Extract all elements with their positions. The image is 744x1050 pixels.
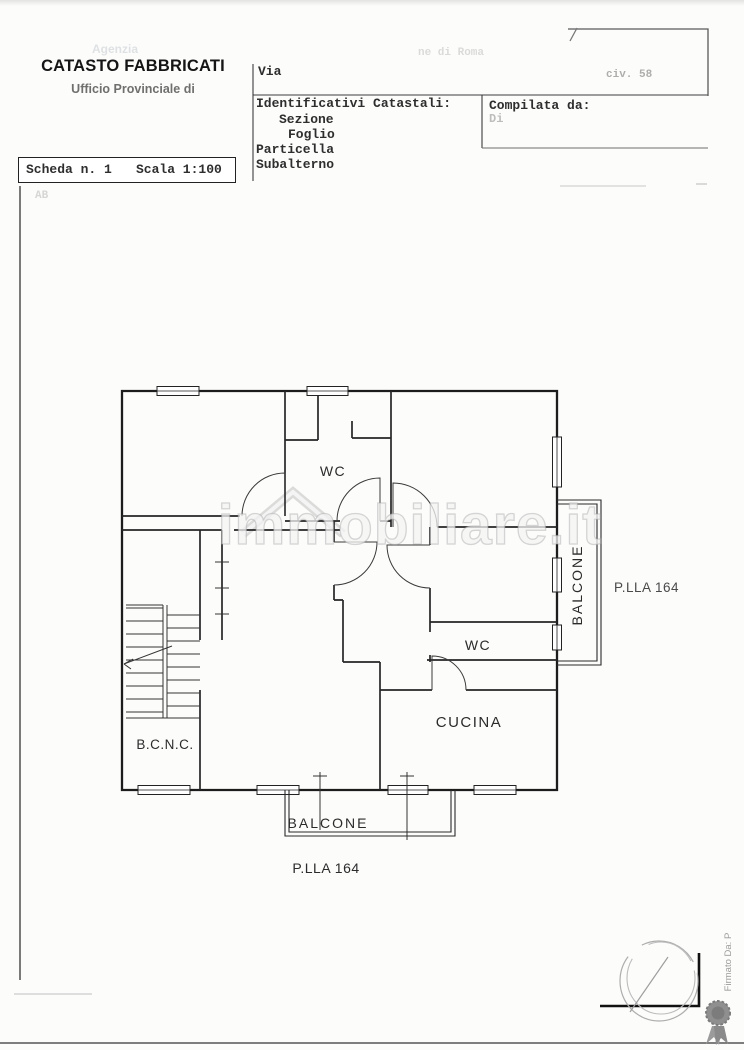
plan-label-parcel-bottom: P.LLA 164	[292, 860, 359, 876]
faded-comune-text: ne di Roma	[418, 47, 484, 59]
windows	[138, 387, 562, 795]
stairs	[124, 605, 200, 718]
plan-label-balcony-bottom: BALCONE	[288, 815, 369, 831]
corner-mark-top-right	[568, 28, 708, 96]
cadastral-ids-label: Identificativi Catastali:	[256, 96, 451, 111]
stamp-circle	[620, 941, 698, 1021]
sheet-number-box: Scheda n. 1 Scala 1:100	[18, 157, 236, 183]
plan-label-kitchen: CUCINA	[436, 714, 503, 731]
office-subtitle: Ufficio Provinciale di	[38, 82, 228, 96]
foglio-field-label: Foglio	[288, 127, 335, 142]
sezione-field-label: Sezione	[279, 112, 334, 127]
watermark-house-icon	[243, 492, 343, 534]
faded-civic-number: civ. 58	[606, 69, 652, 81]
faded-agency-text: Agenzia	[92, 42, 138, 56]
particella-field-label: Particella	[256, 142, 334, 157]
rosette-seal-icon	[706, 1001, 730, 1045]
faded-margin-note: AB	[35, 190, 48, 202]
page-border-lines	[0, 186, 744, 1043]
plan-label-wc-mid: WC	[465, 637, 491, 653]
street-field-label: Via	[258, 64, 281, 79]
document-title: CATASTO FABBRICATI	[38, 57, 228, 76]
sheet-number-label: Scheda n. 1	[26, 162, 112, 177]
signature-text: Firmato Da: P	[723, 933, 734, 992]
compiled-by-label: Compilata da:	[489, 98, 590, 113]
corner-mark-bottom-right	[600, 953, 699, 1006]
scanned-cadastral-sheet: { "header": { "title": "CATASTO FABBRICA…	[0, 0, 744, 1050]
faded-compiler-name: Di	[489, 112, 503, 126]
subalterno-field-label: Subalterno	[256, 157, 334, 172]
plan-label-parcel-right: P.LLA 164	[614, 580, 679, 595]
scale-label: Scala 1:100	[136, 162, 222, 177]
plan-label-balcony-right: BALCONE	[569, 545, 585, 626]
plan-label-wc-top: WC	[320, 463, 346, 479]
plan-label-stairwell: B.C.N.C.	[136, 737, 193, 752]
